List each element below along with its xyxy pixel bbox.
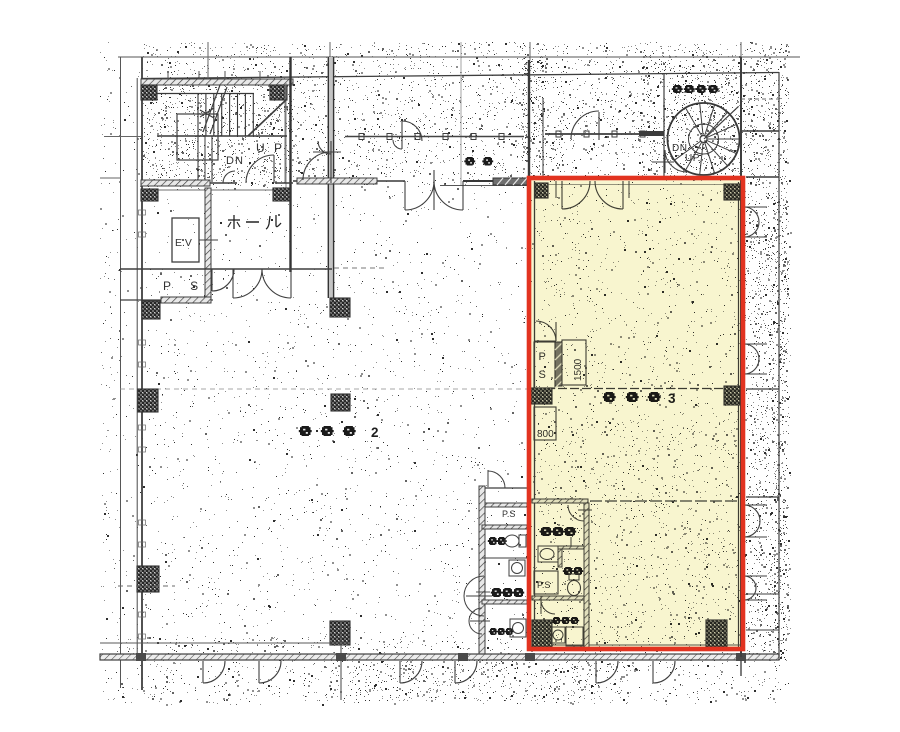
svg-text:P S: P S bbox=[163, 279, 206, 293]
svg-text:UP: UP bbox=[685, 153, 700, 164]
svg-text:U P: U P bbox=[256, 141, 285, 155]
svg-text:2: 2 bbox=[371, 425, 379, 440]
svg-text:E.V: E.V bbox=[175, 237, 192, 249]
svg-text:P.S: P.S bbox=[502, 509, 515, 519]
svg-text:DN: DN bbox=[226, 155, 244, 167]
